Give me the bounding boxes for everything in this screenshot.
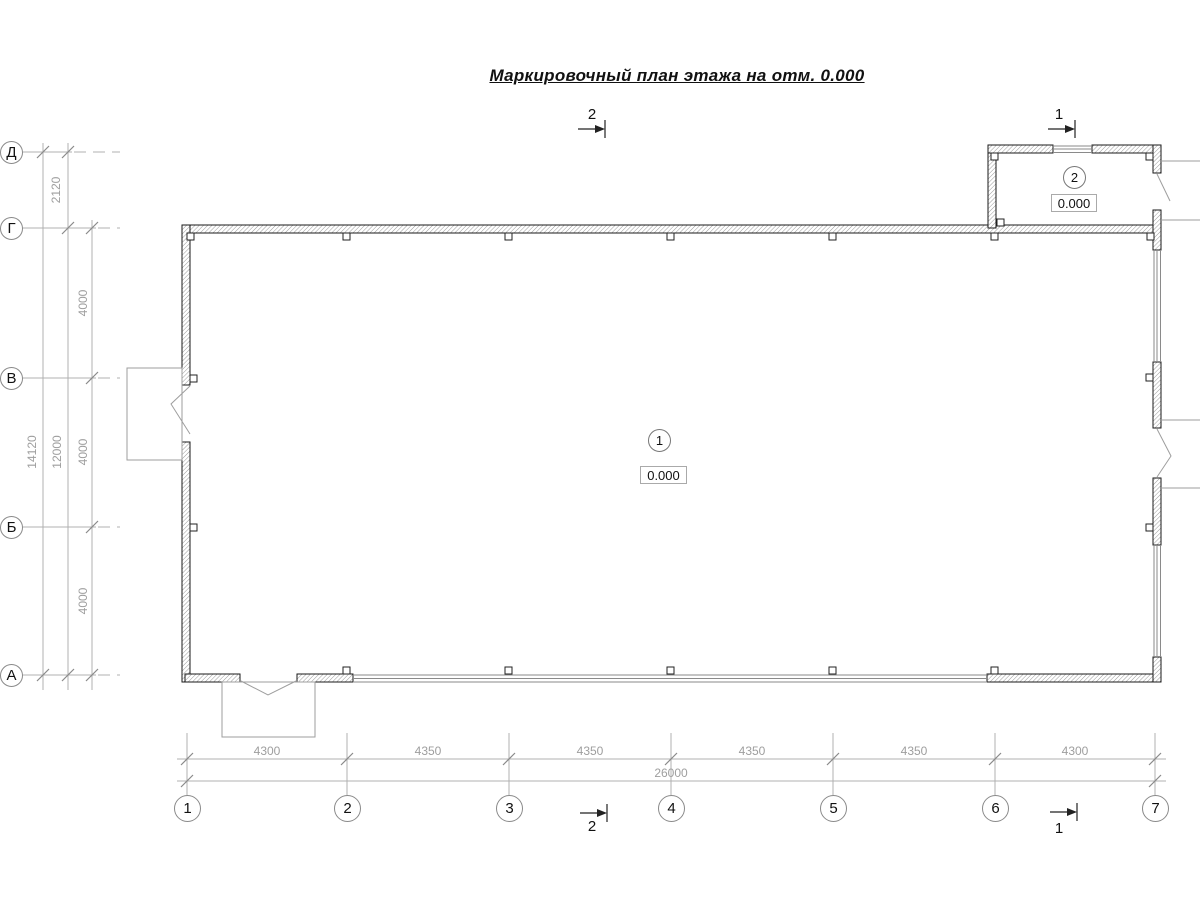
- annex-wall-top-seg1: [988, 145, 1053, 153]
- axis-bubble-b: Б: [0, 516, 23, 539]
- axis-label: Г: [7, 220, 15, 237]
- axis-label: А: [6, 667, 16, 684]
- door-bottom: [241, 681, 296, 695]
- room-number: 2: [1071, 170, 1078, 185]
- room-1-elevation: 0.000: [640, 466, 687, 484]
- dim-left-4000-2: 4000: [76, 439, 90, 466]
- dim-bottom-4350-3: 4350: [739, 744, 766, 758]
- wall-bottom-seg3: [987, 674, 1158, 682]
- room-number: 1: [656, 433, 663, 448]
- door-right: [1157, 429, 1171, 477]
- axis-bubble-a: А: [0, 664, 23, 687]
- annex-wall-right: [1153, 145, 1161, 173]
- dim-left-14120: 14120: [25, 435, 39, 468]
- axis-bubble-g: Г: [0, 217, 23, 240]
- elevation-value: 0.000: [1058, 196, 1091, 211]
- dim-bottom-total-26000: 26000: [654, 766, 687, 780]
- porch-bottom: [222, 682, 315, 737]
- dim-bottom-4300-2: 4300: [1062, 744, 1089, 758]
- wall-bottom-seg2: [297, 674, 353, 682]
- axis-bubble-2: 2: [334, 795, 361, 822]
- axis-bubble-4: 4: [658, 795, 685, 822]
- elevation-value: 0.000: [647, 468, 680, 483]
- floor-plan-canvas: Маркировочный план этажа на отм. 0.000 2…: [0, 0, 1200, 900]
- wall-bottom-seg1: [185, 674, 240, 682]
- axis-lines-left: [22, 152, 120, 675]
- axis-label: 1: [183, 800, 191, 817]
- axis-bubble-v: В: [0, 367, 23, 390]
- axis-bubble-6: 6: [982, 795, 1009, 822]
- wall-right-seg3: [1153, 478, 1161, 545]
- axis-label: 2: [343, 800, 351, 817]
- dim-bottom-4300-1: 4300: [254, 744, 281, 758]
- section-label-2-top: 2: [588, 106, 596, 123]
- dim-bottom-4350-2: 4350: [577, 744, 604, 758]
- axis-label: В: [6, 370, 16, 387]
- dim-left-4000-1: 4000: [76, 290, 90, 317]
- dim-left-4000-3: 4000: [76, 588, 90, 615]
- room-1-bubble: 1: [648, 429, 671, 452]
- wall-top: [185, 225, 1158, 233]
- axis-bubble-d: Д: [0, 141, 23, 164]
- door-swings: [171, 174, 1171, 695]
- axis-label: 7: [1151, 800, 1159, 817]
- drawing-title: Маркировочный план этажа на отм. 0.000: [489, 66, 864, 86]
- axis-bubble-1: 1: [174, 795, 201, 822]
- walls: [182, 145, 1161, 682]
- axis-label: 5: [829, 800, 837, 817]
- axis-bubble-7: 7: [1142, 795, 1169, 822]
- axis-bubble-5: 5: [820, 795, 847, 822]
- annex-wall-top-seg2: [1092, 145, 1158, 153]
- dim-left-12000: 12000: [50, 435, 64, 468]
- axis-bubble-3: 3: [496, 795, 523, 822]
- room-2-bubble: 2: [1063, 166, 1086, 189]
- section-label-1-bottom: 1: [1055, 820, 1063, 837]
- door-annex: [1157, 174, 1170, 201]
- axis-label: 4: [667, 800, 675, 817]
- dim-bottom-4350-4: 4350: [901, 744, 928, 758]
- door-left: [171, 386, 190, 434]
- dim-left-2120: 2120: [49, 177, 63, 204]
- wall-right-seg2: [1153, 362, 1161, 428]
- extension-lines-bottom: [177, 733, 1166, 795]
- axis-label: Б: [7, 519, 17, 536]
- axis-label: 3: [505, 800, 513, 817]
- dim-bottom-4350-1: 4350: [415, 744, 442, 758]
- wall-right-junction: [1153, 210, 1161, 250]
- section-label-2-bottom: 2: [588, 818, 596, 835]
- section-label-1-top: 1: [1055, 106, 1063, 123]
- axis-label: 6: [991, 800, 999, 817]
- room-2-elevation: 0.000: [1051, 194, 1097, 212]
- vestibule-left: [127, 368, 182, 460]
- plan-linework: [0, 0, 1200, 900]
- axis-label: Д: [6, 144, 16, 161]
- wall-right-seg4: [1153, 657, 1161, 682]
- wall-left-lower: [182, 442, 190, 682]
- wall-left-upper: [182, 225, 190, 385]
